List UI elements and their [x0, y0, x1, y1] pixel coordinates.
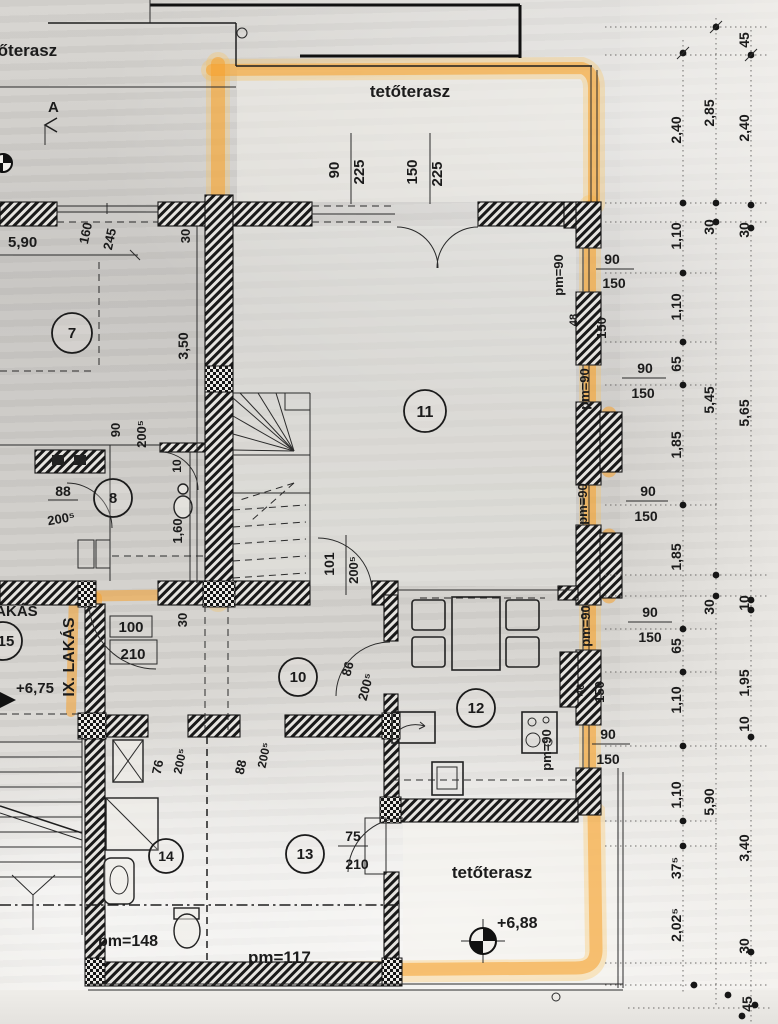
svg-text:30: 30: [736, 222, 752, 238]
svg-text:90: 90: [604, 251, 620, 267]
wall-150b: 150: [592, 681, 607, 703]
svg-text:5,90: 5,90: [701, 788, 717, 815]
svg-text:30: 30: [701, 219, 717, 235]
floor-plan-svg: 7 8 10 11 12 13 14 15 tőterasz tetőteras…: [0, 0, 778, 1024]
room-7: 7: [52, 313, 92, 353]
svg-text:13: 13: [297, 846, 314, 863]
dimension-chain-outer: 45 2,40 30 5,65 10 1,95 10 3,40 30 45: [736, 32, 755, 1012]
svg-text:150: 150: [596, 751, 620, 767]
win-225a: 225: [351, 159, 368, 184]
door-stair-w: 101: [321, 552, 337, 576]
svg-text:2,02⁵: 2,02⁵: [668, 908, 684, 942]
sink: [104, 858, 134, 904]
svg-text:10: 10: [290, 669, 307, 686]
pm117-label: pm=117: [248, 948, 311, 967]
door-wc-w: 90: [108, 423, 123, 437]
door-wc-h: 200⁵: [134, 420, 149, 448]
terrace-label-top: tetőterasz: [370, 82, 450, 101]
washing-machine: [113, 740, 143, 782]
svg-text:150: 150: [631, 385, 655, 401]
door-14-w: 76: [149, 758, 167, 775]
terrace-label-top-left: tőterasz: [0, 41, 57, 60]
svg-text:90: 90: [600, 726, 616, 742]
svg-text:2,85: 2,85: [701, 99, 717, 126]
door-kitchen-w: 86: [339, 660, 357, 678]
kitchen-counter: [432, 762, 463, 795]
door-terr-w: 75: [345, 828, 361, 844]
svg-text:5,45: 5,45: [701, 386, 717, 413]
svg-text:45: 45: [736, 32, 752, 48]
svg-text:8: 8: [109, 490, 117, 507]
door-kitchen-h: 200⁵: [355, 671, 377, 702]
door-13-w: 88: [232, 758, 250, 775]
wall-48: 48: [568, 314, 580, 326]
level-688: +6,88: [497, 915, 538, 932]
dimension-dots: [680, 24, 759, 1020]
svg-text:37⁵: 37⁵: [668, 857, 684, 879]
dimension-chain-mid: 2,85 30 5,45 30 5,90: [701, 99, 717, 815]
pm148-label: pm=148: [98, 933, 158, 950]
svg-text:65: 65: [668, 356, 684, 372]
dim-160: 1,60: [170, 518, 185, 543]
pm90-4: pm=90: [578, 605, 593, 647]
apartment-label: LAKÁS: [0, 603, 38, 620]
wc-toilet: [174, 484, 192, 518]
pm90-2: pm=90: [577, 368, 592, 410]
svg-text:10: 10: [736, 716, 752, 732]
svg-text:12: 12: [468, 700, 485, 717]
svg-text:90: 90: [642, 604, 658, 620]
win-90: 90: [326, 162, 343, 179]
survey-point-left: [0, 154, 12, 172]
dim-30-top: 30: [178, 229, 193, 243]
svg-text:7: 7: [68, 325, 76, 342]
room-13: 13: [286, 835, 324, 873]
svg-text:1,10: 1,10: [668, 293, 684, 320]
win-225b: 225: [429, 161, 446, 186]
svg-text:45: 45: [739, 996, 755, 1012]
svg-text:1,10: 1,10: [668, 781, 684, 808]
door-entry-w: 100: [118, 619, 143, 636]
dim-350: 3,50: [175, 332, 191, 359]
door-13-h: 200⁵: [255, 741, 274, 769]
door-bath-w: 88: [55, 483, 71, 499]
win-150: 150: [404, 159, 421, 184]
level-675: +6,75: [16, 680, 54, 697]
svg-text:1,10: 1,10: [668, 686, 684, 713]
room-12: 12: [457, 689, 495, 727]
svg-text:3,40: 3,40: [736, 834, 752, 861]
door-bath-h: 200⁵: [46, 509, 76, 529]
svg-text:10: 10: [736, 595, 752, 611]
svg-text:1,85: 1,85: [668, 543, 684, 570]
room-10: 10: [279, 658, 317, 696]
svg-text:30: 30: [701, 599, 717, 615]
dim-30-mid: 30: [175, 613, 190, 627]
terrace-label-bottom: tetőterasz: [452, 863, 532, 882]
door-stair-h: 200⁵: [346, 556, 361, 584]
svg-text:2,40: 2,40: [668, 116, 684, 143]
scanned-floor-plan: 7 8 10 11 12 13 14 15 tőterasz tetőteras…: [0, 0, 778, 1024]
toilet-14: [174, 908, 200, 948]
apartment-ix-label: IX. LAKÁS: [59, 617, 78, 696]
room-14: 14: [149, 839, 183, 873]
win-160: 160: [76, 221, 95, 245]
svg-text:90: 90: [640, 483, 656, 499]
svg-text:14: 14: [158, 848, 174, 864]
svg-text:1,10: 1,10: [668, 222, 684, 249]
door-14-h: 200⁵: [171, 747, 190, 775]
dim-10: 10: [170, 459, 184, 473]
room-8: 8: [94, 479, 132, 517]
dim-590: 5,90: [8, 234, 37, 251]
room-15: 15: [0, 622, 22, 660]
wall-40: 40: [575, 684, 587, 696]
svg-text:15: 15: [0, 633, 14, 650]
svg-text:65: 65: [668, 638, 684, 654]
door-entry-h: 210: [120, 646, 145, 663]
svg-text:1,85: 1,85: [668, 431, 684, 458]
svg-text:150: 150: [638, 629, 662, 645]
svg-text:150: 150: [634, 508, 658, 524]
svg-text:11: 11: [417, 404, 434, 421]
pm90-1: pm=90: [551, 254, 566, 296]
shower: [106, 798, 158, 850]
svg-text:5,65: 5,65: [736, 399, 752, 426]
section-marker: [45, 118, 57, 145]
section-a-label: A: [48, 99, 59, 116]
pm90-5: pm=90: [539, 729, 554, 771]
win-245: 245: [100, 227, 119, 251]
svg-text:1,95: 1,95: [736, 669, 752, 696]
svg-text:90: 90: [637, 360, 653, 376]
room-11: 11: [404, 390, 446, 432]
svg-text:150: 150: [602, 275, 626, 291]
dimension-grid: [605, 18, 770, 1022]
svg-text:30: 30: [736, 938, 752, 954]
door-terr-h: 210: [345, 856, 369, 872]
wall-150a: 150: [594, 317, 609, 339]
svg-text:2,40: 2,40: [736, 114, 752, 141]
level-marker: [0, 692, 16, 708]
pm90-3: pm=90: [575, 483, 590, 525]
